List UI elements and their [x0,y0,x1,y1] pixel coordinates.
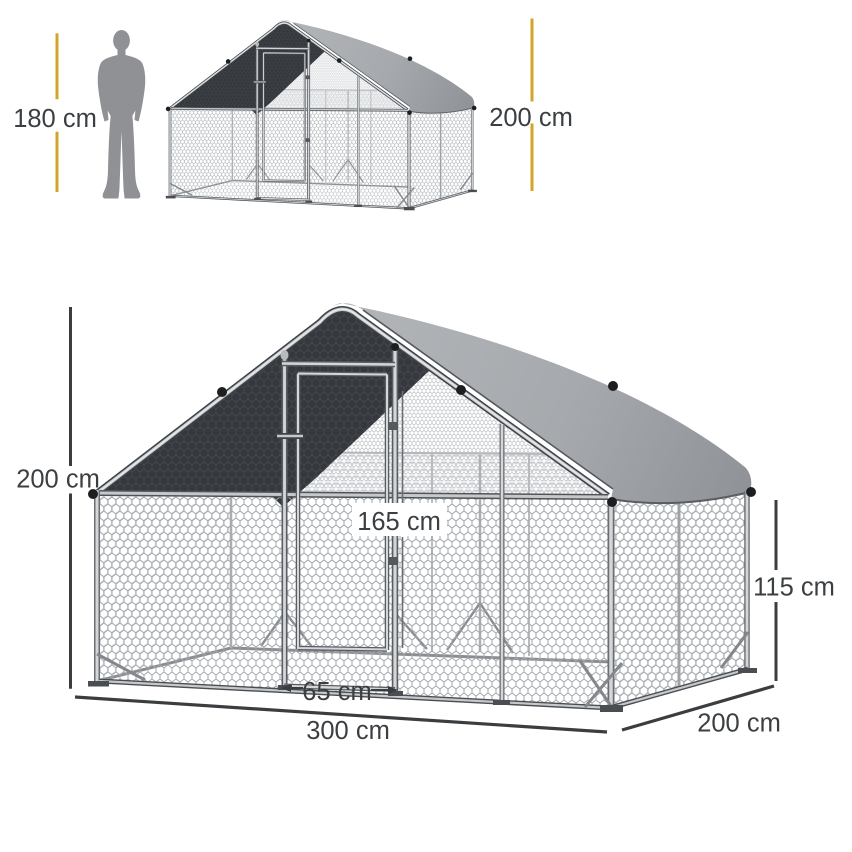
svg-text:200 cm: 200 cm [697,710,781,738]
svg-text:165 cm: 165 cm [357,508,441,536]
svg-text:200 cm: 200 cm [16,466,100,494]
svg-text:115 cm: 115 cm [753,574,835,602]
svg-text:200 cm: 200 cm [489,104,573,132]
svg-text:300 cm: 300 cm [306,717,390,745]
svg-text:180 cm: 180 cm [13,105,97,133]
svg-text:65 cm: 65 cm [302,678,371,706]
